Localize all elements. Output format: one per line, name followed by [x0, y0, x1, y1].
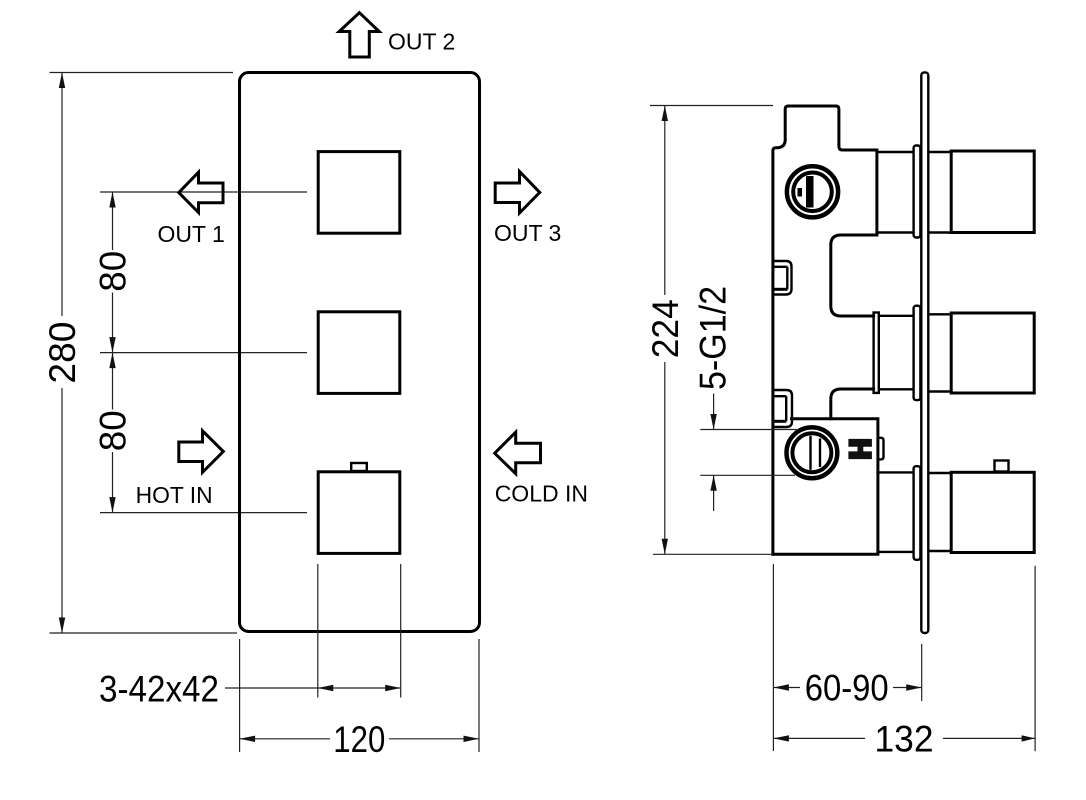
svg-text:120: 120 — [333, 719, 385, 760]
svg-text:224: 224 — [645, 299, 686, 358]
svg-text:OUT 1: OUT 1 — [158, 221, 225, 247]
svg-text:OUT 2: OUT 2 — [388, 29, 455, 55]
svg-text:80: 80 — [93, 251, 134, 292]
svg-text:132: 132 — [875, 718, 934, 759]
svg-text:280: 280 — [42, 322, 83, 384]
svg-text:COLD IN: COLD IN — [495, 481, 588, 507]
svg-text:5-G1/2: 5-G1/2 — [693, 286, 734, 390]
svg-text:60-90: 60-90 — [805, 668, 889, 709]
svg-text:80: 80 — [93, 410, 134, 451]
svg-text:3-42x42: 3-42x42 — [99, 669, 219, 710]
svg-text:OUT 3: OUT 3 — [494, 220, 561, 246]
svg-text:HOT IN: HOT IN — [136, 482, 213, 508]
